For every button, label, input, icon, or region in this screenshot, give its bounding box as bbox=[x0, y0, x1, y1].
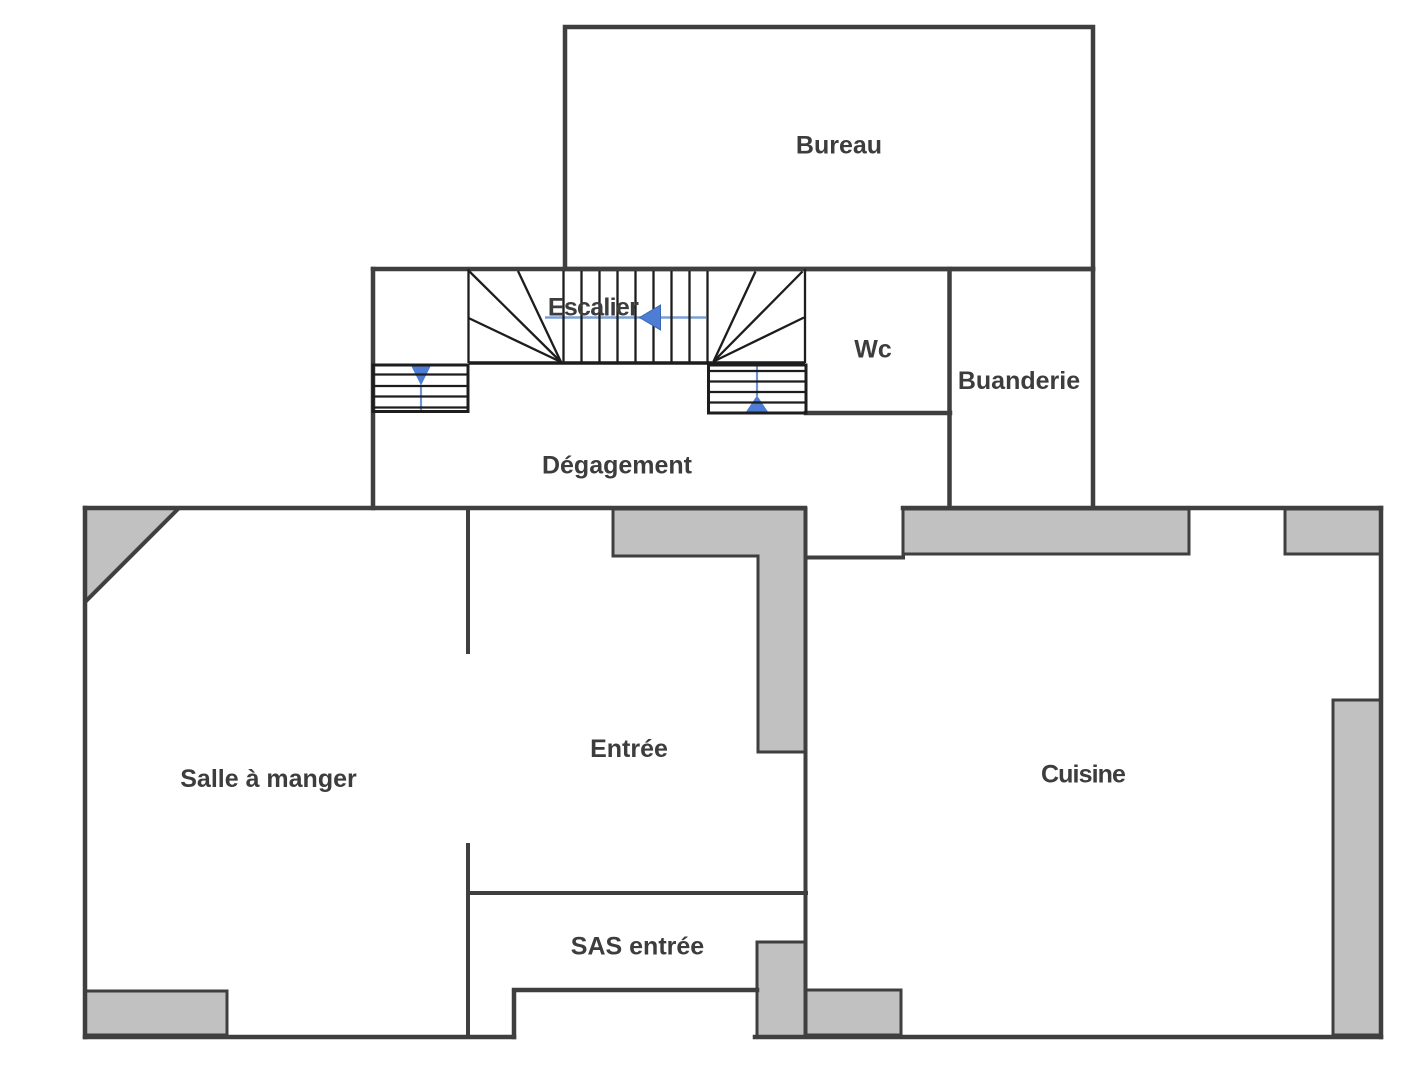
svg-text:Buanderie: Buanderie bbox=[958, 367, 1080, 395]
svg-text:Salle à manger: Salle à manger bbox=[180, 765, 357, 793]
svg-text:Escalier: Escalier bbox=[548, 294, 639, 322]
svg-text:Dégagement: Dégagement bbox=[542, 452, 693, 480]
svg-text:Wc: Wc bbox=[854, 336, 892, 364]
svg-text:Entrée: Entrée bbox=[590, 735, 668, 763]
svg-text:Cuisine: Cuisine bbox=[1041, 761, 1126, 789]
svg-text:Bureau: Bureau bbox=[796, 132, 882, 160]
svg-text:SAS entrée: SAS entrée bbox=[571, 933, 704, 961]
